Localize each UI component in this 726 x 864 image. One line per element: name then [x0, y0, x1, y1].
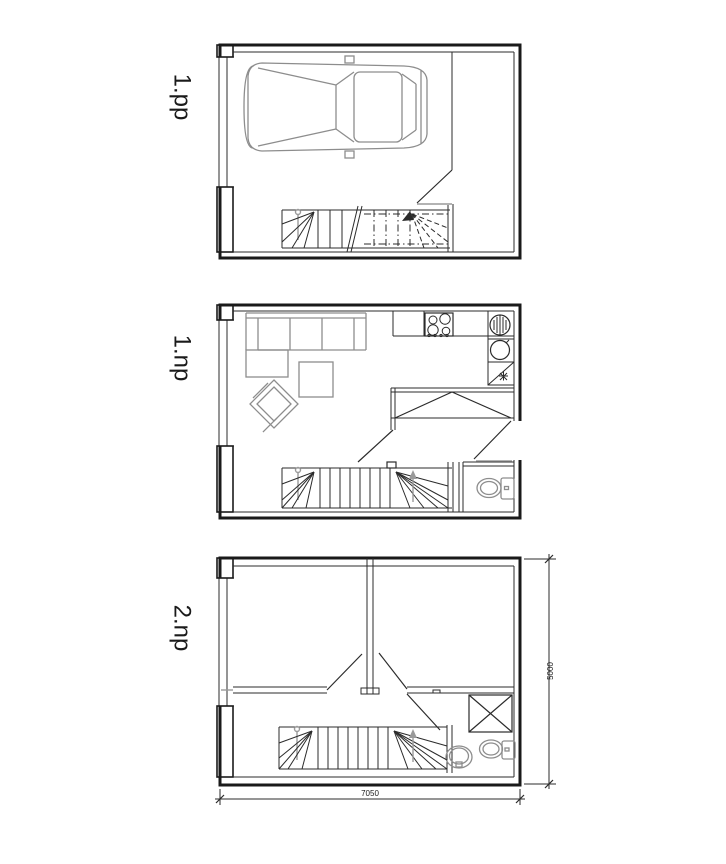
- floor-plan-sheet: 1.pp: [0, 0, 726, 864]
- dimension-height-value: 5000: [546, 662, 555, 680]
- floor-label-2np: 2.np: [169, 605, 196, 652]
- toilet-icon-2np: [480, 740, 516, 759]
- dimension-width-value: 7050: [361, 789, 379, 798]
- door-swing-living: [358, 430, 393, 462]
- door-swing-left-bedroom: [327, 654, 362, 690]
- car-top-view: [244, 56, 427, 158]
- door-swing-garage: [417, 170, 452, 204]
- door-swing-bathroom: [407, 694, 440, 730]
- stair-direction-arrow: [402, 211, 414, 221]
- shaft-x-box: [469, 695, 512, 732]
- floor-label-1np: 1.np: [169, 335, 196, 382]
- dimension-vertical: 5000: [524, 554, 556, 789]
- coffee-table: [299, 362, 333, 397]
- floor-plan-1np: 1.np: [169, 305, 525, 518]
- dimension-horizontal: 7050: [215, 789, 525, 805]
- staircase-1pp: [282, 206, 450, 252]
- stair-direction-arrow: [409, 729, 417, 738]
- sofa: [246, 313, 366, 377]
- entry-closet: [391, 388, 514, 430]
- door-swing-right-bedroom: [379, 653, 407, 689]
- floor-plan-2np: 2.np: [169, 558, 520, 785]
- floor-label-1pp: 1.pp: [169, 74, 196, 121]
- washbasin-icon-2np: [446, 746, 472, 768]
- armchair: [250, 380, 298, 432]
- staircase-1np: [282, 462, 453, 512]
- sink-icon: [490, 315, 510, 335]
- floor-plan-1pp: 1.pp: [169, 45, 520, 258]
- washbasin-icon: [491, 340, 510, 360]
- toilet-icon-1np: [477, 478, 514, 499]
- bedroom-partition-wall: [361, 558, 379, 694]
- staircase-2np: [279, 727, 447, 770]
- boiler-icon: [488, 362, 514, 385]
- floor-plan-drawing: 1.pp: [0, 0, 726, 864]
- stove-icon: [425, 313, 453, 337]
- stair-direction-arrow: [409, 470, 417, 479]
- door-swing-entrance: [474, 421, 511, 459]
